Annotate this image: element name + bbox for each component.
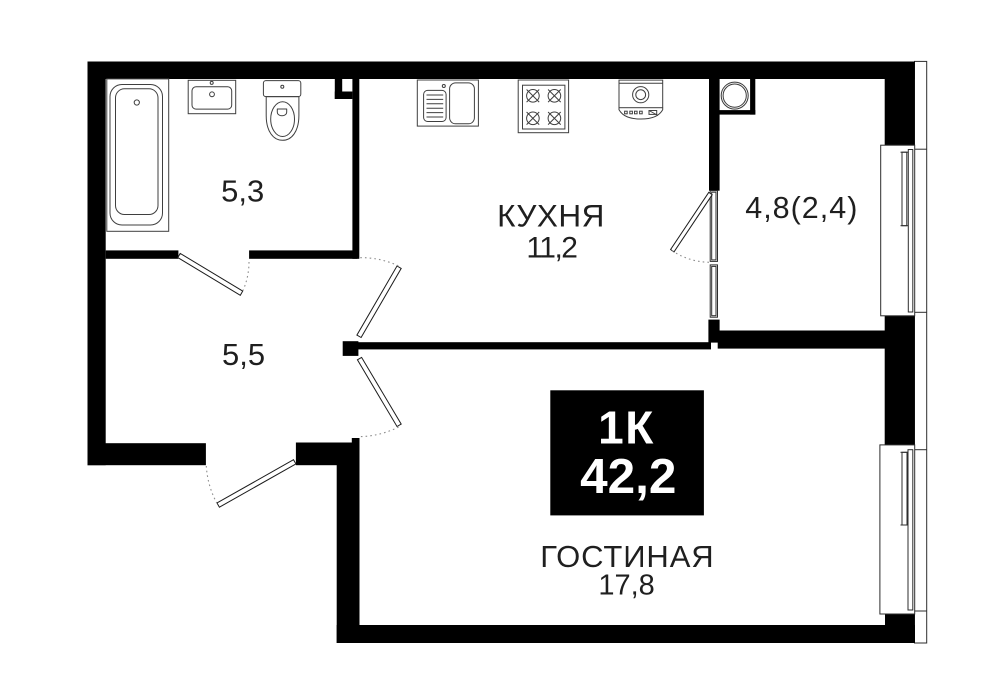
svg-text:5,3: 5,3: [221, 173, 264, 208]
svg-text:11,2: 11,2: [526, 231, 577, 264]
svg-text:17,8: 17,8: [598, 570, 654, 602]
svg-text:5,5: 5,5: [222, 337, 265, 372]
svg-text:4,8(2,4): 4,8(2,4): [745, 191, 858, 225]
svg-text:КУХНЯ: КУХНЯ: [497, 197, 605, 233]
svg-text:42,2: 42,2: [580, 449, 676, 504]
svg-text:1К: 1К: [598, 401, 655, 453]
